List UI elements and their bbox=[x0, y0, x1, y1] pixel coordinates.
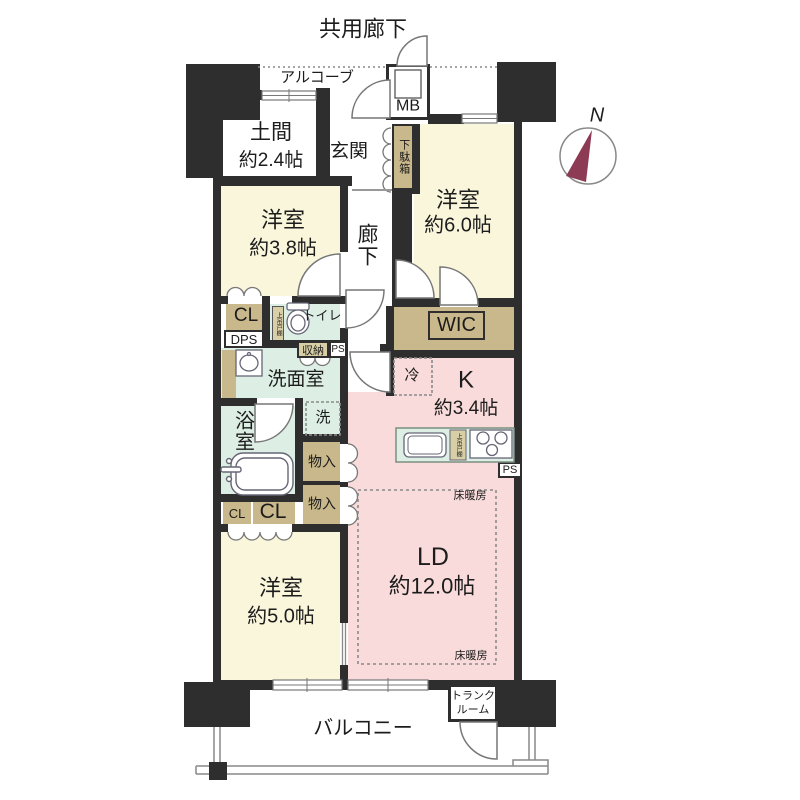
monoire-1-label: 物入 bbox=[308, 455, 336, 470]
toilet-door-arc bbox=[346, 290, 384, 328]
bathroom-door-arc bbox=[255, 404, 293, 442]
cl-large-label: CL bbox=[260, 501, 287, 523]
alcove-label: アルコーブ bbox=[280, 70, 354, 86]
trunk-room-label-1: トランク bbox=[451, 691, 495, 703]
western-3-8-label: 洋室 bbox=[261, 208, 305, 231]
ld-label: LD bbox=[417, 544, 449, 570]
ld-size: 約12.0帖 bbox=[389, 574, 476, 597]
railing-post bbox=[209, 762, 227, 780]
compass bbox=[560, 128, 616, 184]
western-5-0-closet-bifold bbox=[228, 532, 292, 540]
bathroom-label: 浴室 bbox=[232, 410, 253, 452]
vanity-sink bbox=[236, 350, 262, 376]
ld-door-arc bbox=[350, 352, 390, 392]
western-6-0-door-arc bbox=[396, 260, 434, 298]
shelf-kitchen-label: 上吊戸棚 bbox=[455, 433, 461, 457]
toilet-label: トイレ bbox=[302, 309, 341, 323]
balcony-label: バルコニー bbox=[313, 719, 413, 740]
bathtub bbox=[221, 453, 293, 495]
fridge-label: 冷 bbox=[404, 368, 419, 384]
western-6-0-size: 約6.0帖 bbox=[424, 216, 492, 237]
trunk-room-label-2: ルーム bbox=[457, 705, 490, 717]
wic-door-arc bbox=[440, 267, 478, 305]
shelf-toilet-label: 上吊戸棚 bbox=[275, 312, 281, 336]
floor-heating-bottom-label: 床暖房 bbox=[455, 651, 488, 663]
cl-small-label: CL bbox=[229, 507, 246, 521]
getabako-label: 下駄箱 bbox=[397, 139, 409, 175]
shared-corridor-label: 共用廊下 bbox=[319, 17, 407, 40]
western-6-0-label: 洋室 bbox=[436, 188, 480, 211]
western-3-8-door-arc bbox=[298, 254, 340, 296]
monoire-1-bifold bbox=[348, 444, 358, 482]
plan-graphics bbox=[0, 0, 800, 800]
entrance-door-arc bbox=[352, 80, 390, 118]
doma-label: 土間 bbox=[250, 122, 292, 144]
western-3-8-closet-bifold bbox=[227, 288, 261, 297]
monoire-2-label: 物入 bbox=[308, 497, 336, 512]
corridor-label: 廊下 bbox=[355, 223, 377, 267]
monoire-2-bifold bbox=[348, 487, 358, 525]
shuno-bifold bbox=[300, 358, 330, 366]
floor-plan: DPS 収納 PS PS WIC bbox=[0, 0, 800, 800]
western-5-0-label: 洋室 bbox=[259, 576, 303, 599]
trunk-door-arc bbox=[460, 722, 497, 759]
washer-label: 洗 bbox=[315, 410, 330, 426]
washroom-label: 洗面室 bbox=[267, 370, 324, 390]
cl-upper-label: CL bbox=[234, 306, 258, 326]
western-3-8-size: 約3.8帖 bbox=[249, 239, 317, 260]
doma-size: 約2.4帖 bbox=[239, 151, 303, 171]
getabako-bifold bbox=[383, 128, 391, 192]
compass-n-label: N bbox=[590, 106, 604, 127]
mb-label: MB bbox=[396, 99, 420, 116]
western-5-0-size: 約5.0帖 bbox=[247, 607, 315, 628]
genkan-label: 玄関 bbox=[330, 142, 368, 162]
kitchen-label: K bbox=[458, 367, 474, 392]
floor-heating-top-label: 床暖房 bbox=[454, 491, 487, 503]
kitchen-size: 約3.4帖 bbox=[434, 399, 498, 419]
sliding-door bbox=[340, 623, 348, 665]
mb-inner bbox=[395, 70, 421, 98]
stove bbox=[470, 430, 512, 458]
